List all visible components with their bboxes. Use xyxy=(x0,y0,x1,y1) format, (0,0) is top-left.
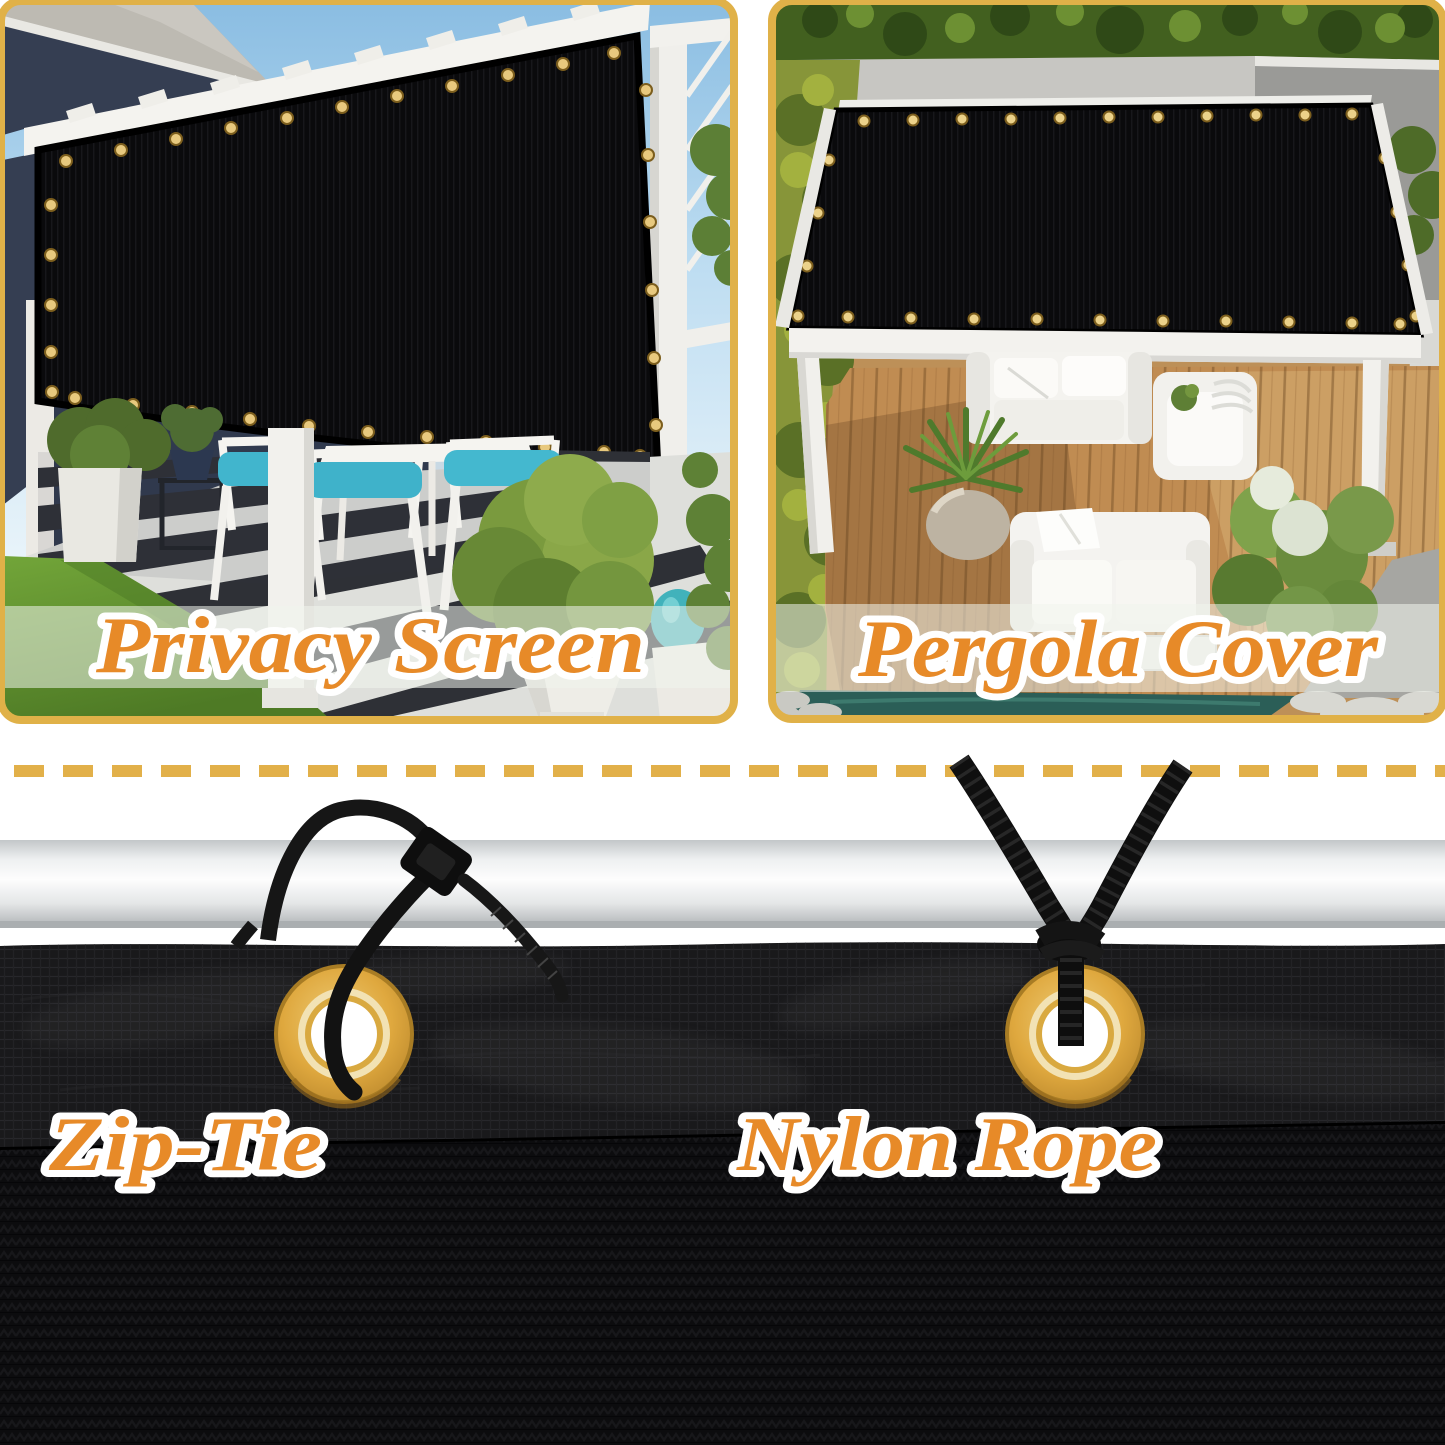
svg-text:Zip-Tie: Zip-Tie xyxy=(48,1101,322,1187)
svg-text:Nylon Rope: Nylon Rope xyxy=(736,1101,1157,1187)
svg-text:Privacy Screen: Privacy Screen xyxy=(95,600,645,690)
svg-text:Pergola Cover: Pergola Cover xyxy=(857,603,1379,694)
